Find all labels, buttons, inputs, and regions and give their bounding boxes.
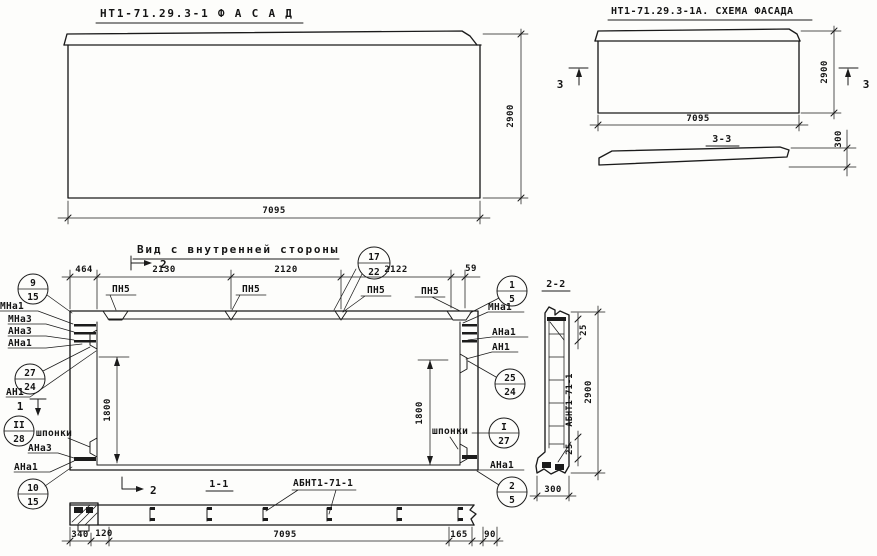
label-ana1-right-bottom: АНа1 <box>471 460 524 471</box>
balloon-25-24: 25 24 <box>468 361 525 399</box>
svg-text:АБНТ1-71-1: АБНТ1-71-1 <box>293 478 353 489</box>
facade-scheme-view: НТ1-71.29.3-1А. СХЕМА ФАСАДА 3 3 2900 70… <box>557 6 870 176</box>
section-2-2-top-anchor <box>547 317 566 321</box>
balloon-9-15: 9 15 <box>18 274 72 313</box>
balloon-leader <box>477 471 499 485</box>
facade-title: НТ1-71.29.3-1 Ф А С А Д <box>100 7 294 20</box>
svg-text:2900: 2900 <box>584 380 594 403</box>
svg-text:АНа1: АНа1 <box>490 460 514 471</box>
svg-text:ПН5: ПН5 <box>112 284 130 295</box>
svg-text:28: 28 <box>13 434 25 445</box>
svg-text:АНа3: АНа3 <box>8 326 32 337</box>
svg-text:АНа1: АНа1 <box>8 338 32 349</box>
balloon-leader <box>334 269 362 312</box>
svg-text:I: I <box>501 422 507 433</box>
svg-text:1: 1 <box>509 280 515 291</box>
svg-text:АНа1: АНа1 <box>14 462 38 473</box>
svg-text:24: 24 <box>24 382 36 393</box>
cut-mark-arrow <box>845 68 851 77</box>
section-1-1-product-label: АБНТ1-71-1 <box>266 478 356 514</box>
svg-text:15: 15 <box>27 292 39 303</box>
dim-120: 120 <box>95 529 112 539</box>
label-ana3-left-bottom: АНа3 <box>28 443 74 458</box>
loop-label-4: ПН5 <box>415 286 460 311</box>
balloon-leader <box>43 347 90 371</box>
section-3-3-profile <box>599 147 789 165</box>
cut-arrow <box>144 260 152 266</box>
svg-text:1800: 1800 <box>415 401 425 424</box>
svg-text:МНа3: МНа3 <box>8 314 32 325</box>
loop-label-1: ПН5 <box>106 284 136 310</box>
section-2-2-dim-bottom-25: 25 <box>565 431 581 466</box>
svg-text:5: 5 <box>509 495 515 506</box>
dim-59: 59 <box>465 264 477 274</box>
svg-text:27: 27 <box>498 436 509 447</box>
dim-464: 464 <box>75 265 93 275</box>
label-ana1-left-bottom: АНа1 <box>14 461 74 473</box>
anchor-plate-left-3 <box>74 340 96 343</box>
inner-key-right-lower <box>460 444 467 463</box>
dim-7095: 7095 <box>273 530 296 540</box>
section-2-2-bottom-anchor-2 <box>555 464 564 470</box>
facade-view: НТ1-71.29.3-1 Ф А С А Д 7095 2900 <box>58 7 528 224</box>
balloon-leader <box>47 295 72 313</box>
svg-text:17: 17 <box>368 252 379 263</box>
loop-label-3: ПН5 <box>343 285 391 312</box>
balloon-10-15: 10 15 <box>18 467 72 509</box>
anchor-plate-left-bottom <box>74 457 96 461</box>
cut-label: 2 <box>160 258 167 271</box>
section-2-2-dim-top-25: 25 <box>575 313 589 349</box>
section-1-1-anchor-mark-2 <box>86 507 93 513</box>
inner-view-title: Вид с внутренней стороны <box>137 243 339 256</box>
cut-mark-label: 3 <box>557 78 564 91</box>
inner-panel-side-inner-lines <box>97 322 460 465</box>
section-3-3-title: 3-3 <box>712 134 732 145</box>
cut-label: 1 <box>17 400 24 413</box>
section-1-1-profile-edges <box>70 505 474 525</box>
balloon-17-22: 17 22 <box>334 247 390 312</box>
section-2-2-dim-width: 300 <box>530 476 576 501</box>
section-3-3-extension-lines <box>789 148 856 167</box>
label-an1-left: АН1 <box>6 351 96 398</box>
scheme-title: НТ1-71.29.3-1А. СХЕМА ФАСАДА <box>611 6 794 17</box>
svg-text:МНа1: МНа1 <box>0 301 24 312</box>
svg-text:АН1: АН1 <box>492 342 510 353</box>
balloon-27-24: 27 24 <box>15 347 90 394</box>
svg-text:25: 25 <box>579 324 589 336</box>
anchor-plate-right-1 <box>462 324 477 327</box>
anchor-plate-right-3 <box>462 340 477 343</box>
inner-key-left-lower <box>90 438 97 457</box>
svg-text:22: 22 <box>368 267 379 278</box>
scheme-height-dim: 2900 <box>820 60 830 83</box>
balloon-leader <box>468 361 496 377</box>
cut-mark-arrow <box>576 68 582 77</box>
anchor-plate-right-bottom <box>462 455 477 459</box>
svg-text:27: 27 <box>24 368 35 379</box>
svg-text:АН1: АН1 <box>6 387 24 398</box>
loop-label-2: ПН5 <box>232 284 266 310</box>
drawing-sheet: НТ1-71.29.3-1 Ф А С А Д 7095 2900 НТ1-71… <box>0 0 877 556</box>
inner-cut-mark-left: 1 <box>17 399 46 416</box>
facade-height-dim: 2900 <box>506 104 516 127</box>
svg-text:15: 15 <box>27 497 39 508</box>
balloon-II-28: II 28 <box>4 416 34 446</box>
section-2-2-bottom-anchor-1 <box>542 462 551 468</box>
inner-right-height-dim: 1800 <box>415 360 448 465</box>
inner-left-height-dim: 1800 <box>99 357 129 463</box>
cut-mark-label: 3 <box>863 78 870 91</box>
svg-text:ПН5: ПН5 <box>421 286 439 297</box>
cut-arrow <box>136 486 144 492</box>
section-1-1: 2 1-1 АБНТ1-71-1 340 120 7095 165 90 <box>62 477 503 546</box>
section-1-1-rebar-brackets <box>150 507 463 521</box>
inner-key-right-upper <box>460 354 467 373</box>
inner-cut-mark-top: 2 <box>131 256 167 271</box>
dim-90: 90 <box>484 530 496 540</box>
svg-text:АНа3: АНа3 <box>28 443 52 454</box>
balloon-leader <box>45 467 72 486</box>
facade-body-outline <box>68 45 480 198</box>
svg-text:10: 10 <box>27 483 39 494</box>
svg-text:24: 24 <box>504 387 516 398</box>
svg-text:2: 2 <box>509 481 515 492</box>
dim-340: 340 <box>71 530 88 540</box>
svg-text:9: 9 <box>30 278 36 289</box>
technical-drawing: НТ1-71.29.3-1 Ф А С А Д 7095 2900 НТ1-71… <box>0 0 877 556</box>
scheme-body-outline <box>598 41 799 113</box>
svg-text:МНа1: МНа1 <box>488 302 512 313</box>
label-an1-right: АН1 <box>466 342 518 359</box>
anchor-plate-left-2 <box>74 332 96 335</box>
anchor-plate-right-2 <box>462 332 477 335</box>
section-1-1-anchor-mark-1 <box>74 507 83 513</box>
svg-text:шпонки: шпонки <box>432 426 468 437</box>
svg-text:300: 300 <box>544 485 561 495</box>
svg-text:АНа1: АНа1 <box>492 327 516 338</box>
scheme-ledge-outline <box>595 29 800 41</box>
scheme-cut-mark-left: 3 <box>557 68 588 91</box>
section-1-1-end-block <box>70 503 98 525</box>
section-1-1-break-line <box>470 505 476 525</box>
section-2-2: 2-2 АБНТ1-71-1 25 25 <box>530 279 605 501</box>
dim-2120: 2120 <box>274 265 297 275</box>
inner-cut-mark-bottom: 2 <box>122 477 157 497</box>
section-2-2-title: 2-2 <box>546 279 566 290</box>
svg-text:II: II <box>13 420 24 431</box>
balloon-2-5: 2 5 <box>477 471 527 507</box>
svg-text:ПН5: ПН5 <box>367 285 385 296</box>
svg-text:1800: 1800 <box>103 398 113 421</box>
cut-arrow <box>35 408 41 416</box>
facade-ledge-outline <box>64 31 477 45</box>
scheme-cut-mark-right: 3 <box>839 68 869 91</box>
dim-165: 165 <box>450 530 467 540</box>
inner-side-view: Вид с внутренней стороны 464 2130 2120 2… <box>0 243 528 509</box>
section-3-3-thickness-dim: 300 <box>834 130 844 147</box>
facade-width-dim: 7095 <box>262 206 285 216</box>
svg-text:АБНТ1-71-1: АБНТ1-71-1 <box>565 373 575 426</box>
scheme-width-dim: 7095 <box>686 114 709 124</box>
anchor-plate-left-1 <box>74 324 96 327</box>
svg-text:25: 25 <box>565 443 575 455</box>
balloon-I-27: I 27 <box>472 418 519 448</box>
svg-text:25: 25 <box>504 373 516 384</box>
cut-label: 2 <box>150 484 157 497</box>
section-1-1-title: 1-1 <box>209 479 229 490</box>
inner-panel-outline <box>70 311 478 470</box>
svg-text:ПН5: ПН5 <box>242 284 260 295</box>
svg-text:шпонки: шпонки <box>36 428 72 439</box>
label-mna1-right: МНа1 <box>463 302 524 323</box>
